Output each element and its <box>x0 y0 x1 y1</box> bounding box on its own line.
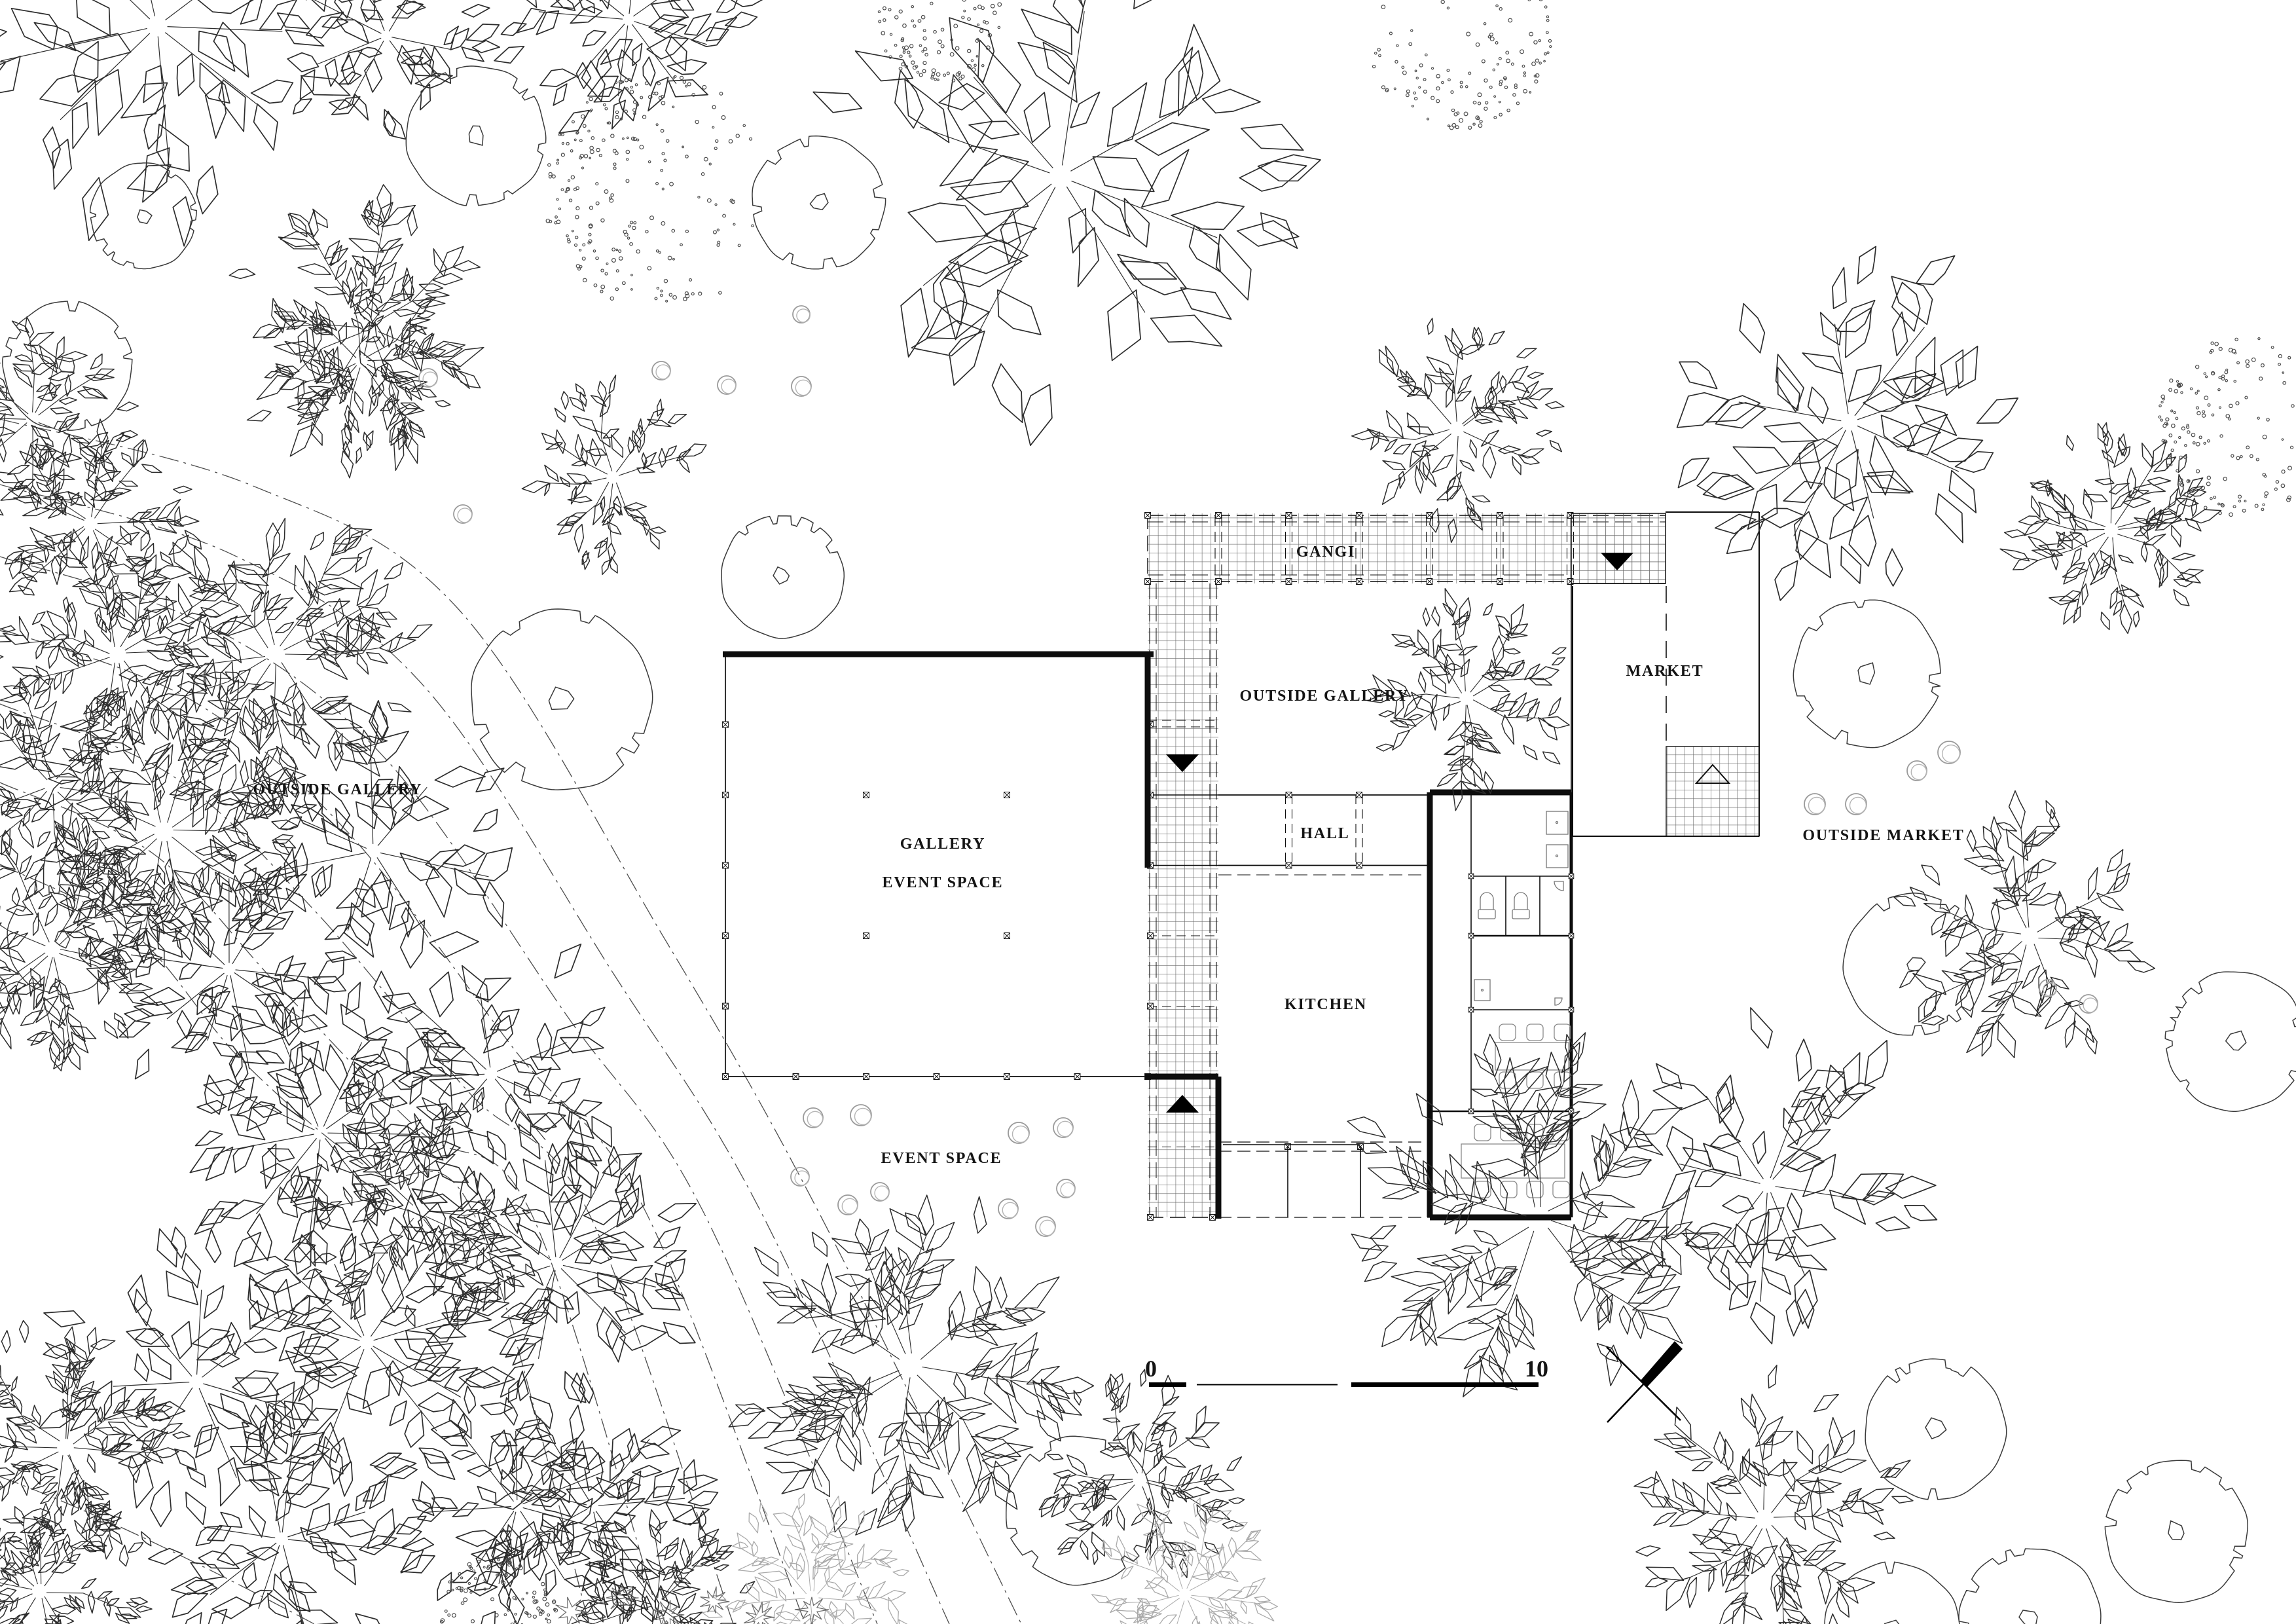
svg-text:0: 0 <box>1145 1356 1157 1382</box>
svg-text:GANGI: GANGI <box>1296 544 1355 561</box>
svg-text:OUTSIDE MARKET: OUTSIDE MARKET <box>1802 827 1964 844</box>
svg-text:10: 10 <box>1525 1356 1548 1382</box>
svg-text:OUTSIDE GALLERY: OUTSIDE GALLERY <box>253 781 423 798</box>
svg-text:EVENT SPACE: EVENT SPACE <box>883 874 1004 891</box>
svg-text:MARKET: MARKET <box>1626 663 1704 680</box>
svg-text:KITCHEN: KITCHEN <box>1285 996 1367 1013</box>
svg-text:GALLERY: GALLERY <box>900 836 985 853</box>
svg-text:OUTSIDE GALLERY: OUTSIDE GALLERY <box>1240 688 1410 705</box>
svg-text:EVENT SPACE: EVENT SPACE <box>881 1150 1002 1167</box>
svg-text:HALL: HALL <box>1300 825 1349 842</box>
